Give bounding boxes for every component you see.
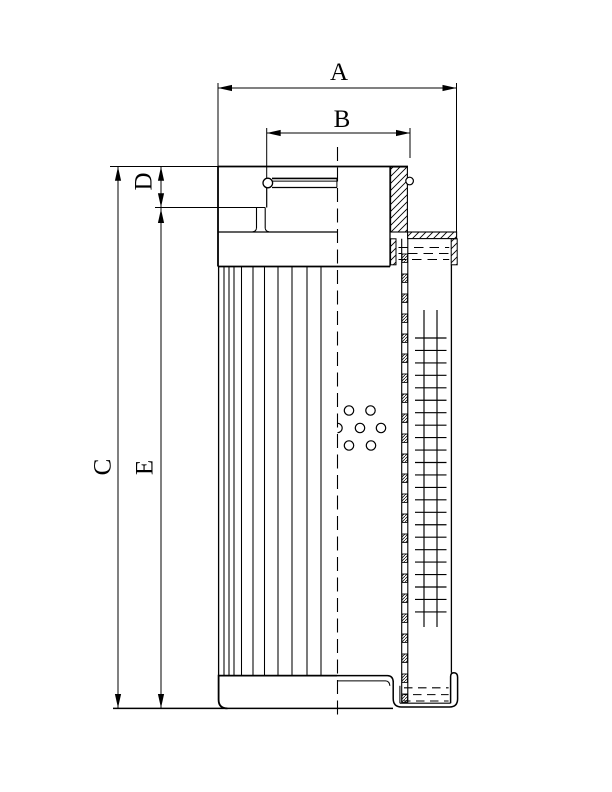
core-tube-segment [402,294,408,302]
cap-hatched-flange [408,232,457,239]
perforation-hole [355,423,364,432]
core-tube-segment [402,354,408,362]
bottom-end-cap [219,676,394,709]
core-tube-segment [402,414,408,422]
inner-tube-foot-right [265,228,269,232]
support-mesh [415,310,447,627]
perforation-hole [366,406,375,415]
perforation-hole [344,441,353,450]
perforation-hole [366,441,375,450]
o-ring-seal [406,177,414,185]
core-perforation-holes [338,406,386,450]
dim-b-arrow-right [396,130,410,136]
shell-skirt-right-hatched [451,239,457,265]
core-tube-segment [402,394,408,402]
inner-tube-foot-left [253,228,257,232]
core-tube-segment [402,454,408,462]
pleated-filter-media [219,267,321,676]
core-tube-segment [402,594,408,602]
core-tube-segment [402,254,408,262]
spigot-rounded-end [263,178,273,188]
dim-e-arrow-bottom [158,694,164,708]
core-tube-segment [402,614,408,622]
core-tube-segment [402,334,408,342]
filter-element-technical-drawing: A B C D E [0,0,612,792]
core-tube-segment [402,274,408,282]
dimension-d: D [131,167,266,709]
dim-a-arrow-left [218,85,232,91]
perforated-core-tube [402,239,408,703]
core-tube-segment [402,514,408,522]
core-tube-segment [402,674,408,682]
shell-skirt-left-hatched [391,239,396,265]
bottom-cup-hidden-lines [404,688,449,701]
core-tube-segment [402,374,408,382]
bottom-cap-sheet-inner [337,681,390,686]
dim-a-label: A [330,59,348,86]
dim-e-arrow-top [158,209,164,223]
dim-d-label: D [131,172,158,190]
dim-d-arrow-bottom [158,193,164,207]
core-tube-segment [402,634,408,642]
dimension-a: A [218,59,457,233]
core-tube-segment [402,574,408,582]
core-tube-segment [402,314,408,322]
dimension-e: E [132,209,165,708]
dim-a-arrow-right [443,85,457,91]
perforation-hole [344,406,353,415]
dim-c-arrow-top [115,167,121,181]
core-tube-segment [402,494,408,502]
core-tube-segment [402,434,408,442]
core-tube-segment [402,474,408,482]
dim-d-arrow-top [158,167,164,181]
dim-b-arrow-left [267,130,281,136]
drawing-sheet: A B C D E [0,0,612,792]
bottom-cap-outline [219,676,337,709]
core-tube-segment [402,654,408,662]
dim-c-label: C [90,459,117,476]
dim-c-arrow-bottom [115,694,121,708]
dim-e-label: E [132,460,159,475]
dim-b-label: B [334,106,351,133]
perforation-hole [376,423,385,432]
perforation-half-hole-on-axis [338,423,343,432]
core-tube-segment [402,534,408,542]
cap-hatched-wall [391,167,408,232]
core-tube-segment [402,554,408,562]
